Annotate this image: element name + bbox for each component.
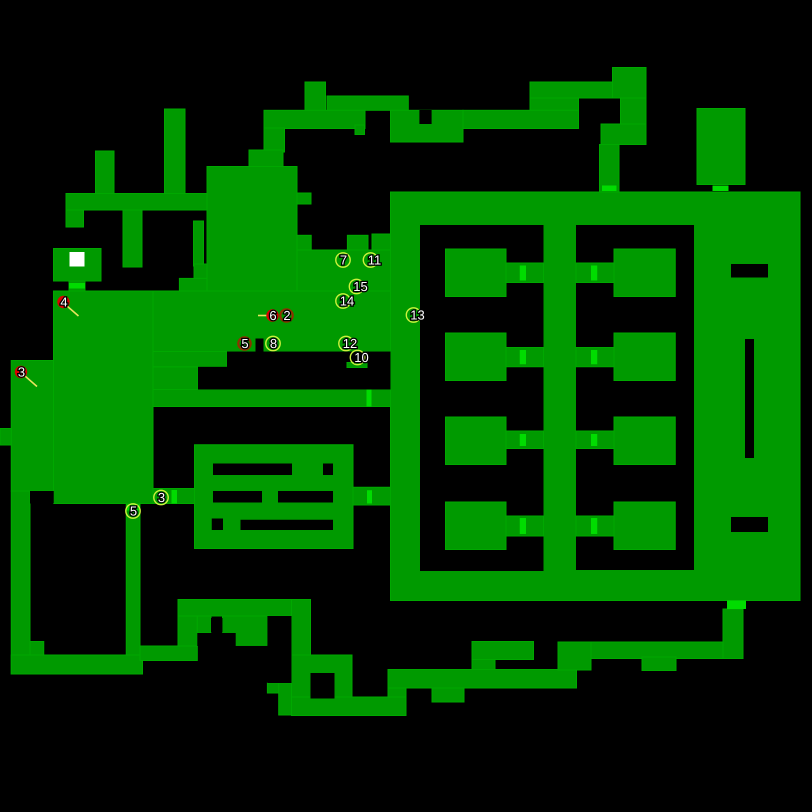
- svg-text:15: 15: [353, 279, 367, 294]
- svg-text:2: 2: [283, 308, 290, 323]
- svg-text:11: 11: [368, 253, 382, 268]
- svg-text:7: 7: [340, 253, 347, 268]
- svg-text:14: 14: [340, 294, 354, 309]
- svg-text:13: 13: [410, 308, 424, 323]
- svg-text:4: 4: [60, 295, 67, 310]
- svg-text:12: 12: [343, 336, 357, 351]
- svg-text:3: 3: [18, 365, 25, 380]
- svg-text:5: 5: [130, 504, 137, 519]
- svg-text:6: 6: [269, 308, 276, 323]
- svg-text:10: 10: [354, 350, 368, 365]
- svg-text:3: 3: [158, 490, 165, 505]
- svg-text:8: 8: [270, 336, 277, 351]
- svg-text:5: 5: [241, 336, 248, 351]
